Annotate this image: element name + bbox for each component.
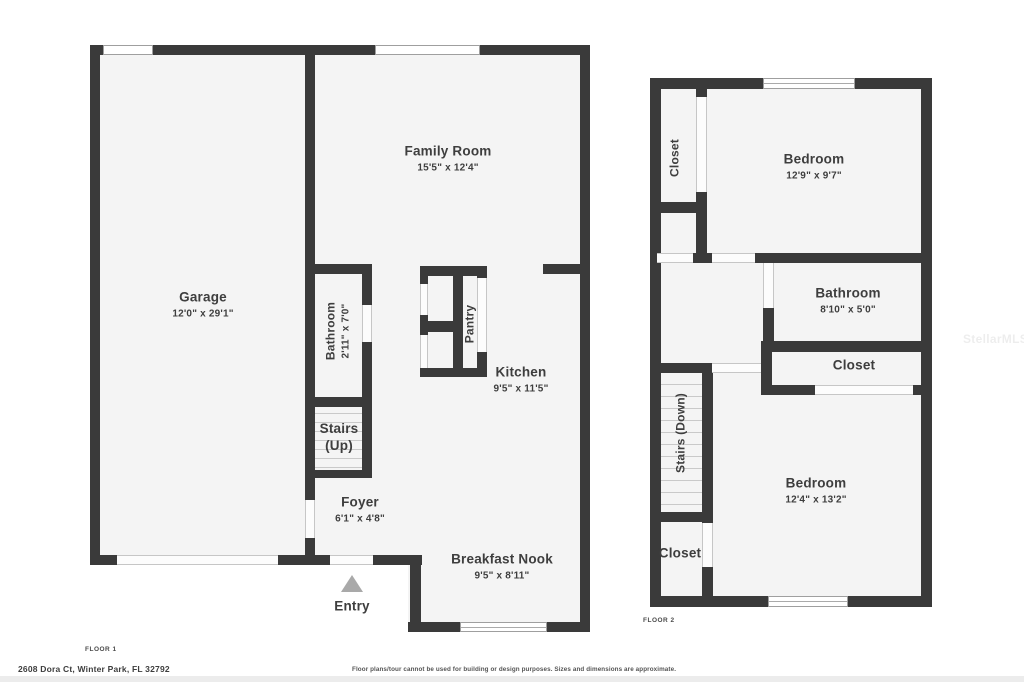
wall-segment [693, 253, 712, 263]
wall-segment [305, 538, 315, 565]
door-opening [763, 263, 774, 308]
wall-segment [90, 45, 100, 565]
stairs-down-label: Stairs (Down) [674, 393, 689, 473]
wall-segment [755, 253, 921, 263]
breakfast-nook-label: Breakfast Nook 9'5" x 8'11" [451, 551, 553, 582]
closet-lower-label: Closet [659, 546, 701, 563]
wall-segment [453, 266, 463, 377]
window [103, 45, 153, 55]
wall-segment [650, 78, 661, 607]
closet-door-opening [702, 523, 713, 567]
wall-segment [702, 363, 713, 512]
window [768, 596, 848, 607]
bathroom2-label: Bathroom 8'10" x 5'0" [815, 285, 880, 316]
wall-segment [696, 78, 707, 97]
window [375, 45, 480, 55]
garage-label: Garage 12'0" x 29'1" [172, 289, 233, 320]
stairs-up-label: Stairs (Up) [320, 421, 359, 455]
wall-segment [305, 470, 372, 478]
floor1-tag: FLOOR 1 [85, 646, 117, 653]
bedroom-rear-label: Bedroom 12'4" x 13'2" [785, 475, 846, 506]
wall-segment [477, 352, 487, 377]
entry-label: Entry [334, 599, 370, 616]
window [460, 622, 547, 632]
footer-strip [0, 676, 1024, 682]
wall-segment [702, 567, 713, 607]
wall-segment [547, 622, 590, 632]
family-room-label: Family Room 15'5" x 12'4" [405, 143, 492, 174]
door-opening [362, 305, 372, 342]
floorplan-canvas: Garage 12'0" x 29'1" Family Room 15'5" x… [0, 0, 1024, 682]
closet-upper-label: Closet [668, 139, 683, 177]
wall-segment [90, 45, 590, 55]
wall-segment [410, 555, 421, 632]
wall-segment [420, 266, 428, 284]
wall-segment [362, 397, 372, 478]
closet-middle-label: Closet [833, 358, 875, 375]
floor2-tag: FLOOR 2 [643, 617, 675, 624]
pantry-label: Pantry [463, 305, 478, 344]
door-opening [712, 363, 761, 373]
mls-watermark: StellarMLS [963, 332, 1024, 346]
door-opening [420, 335, 428, 368]
kitchen-label: Kitchen 9'5" x 11'5" [493, 364, 548, 395]
door-opening [477, 278, 487, 352]
wall-segment [278, 555, 330, 565]
door-opening [657, 253, 693, 263]
foyer-label: Foyer 6'1" x 4'8" [335, 494, 385, 525]
closet-door-opening [696, 97, 707, 192]
wall-segment [543, 264, 590, 274]
door-opening [712, 253, 755, 263]
garage-door-opening [117, 555, 278, 565]
wall-segment [362, 264, 372, 305]
door-opening [420, 284, 428, 315]
bathroom1-label: Bathroom 2'11" x 7'0" [323, 302, 353, 360]
wall-segment [90, 555, 117, 565]
wall-segment [761, 341, 932, 352]
wall-segment [580, 45, 590, 632]
wall-segment [761, 385, 815, 395]
entry-door-opening [330, 555, 373, 565]
wall-segment [408, 622, 460, 632]
door-opening [305, 500, 315, 538]
window [763, 78, 855, 89]
wall-segment [650, 253, 657, 263]
bedroom-front-label: Bedroom 12'9" x 9'7" [784, 151, 845, 182]
wall-segment [650, 202, 707, 213]
disclaimer-text: Floor plans/tour cannot be used for buil… [352, 666, 676, 673]
wall-segment [420, 321, 453, 332]
wall-segment [477, 266, 487, 278]
closet-door-opening [815, 385, 913, 395]
wall-segment [702, 512, 713, 523]
wall-segment [913, 385, 921, 395]
entry-arrow-icon [341, 575, 363, 592]
property-address: 2608 Dora Ct, Winter Park, FL 32792 [18, 664, 170, 674]
